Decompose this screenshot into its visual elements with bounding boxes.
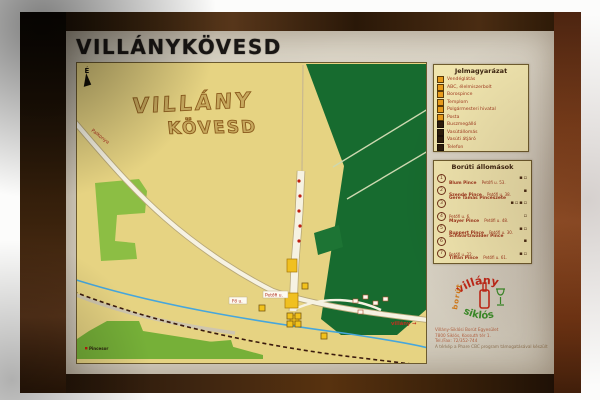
legend-item: Vendéglátás — [434, 76, 528, 84]
north-arrow: É ▲ — [83, 67, 91, 84]
street-labels: Petőfi u. Fő u. — [229, 291, 288, 304]
track-north — [302, 65, 303, 171]
logo-canvas: villány siklós borút — [444, 268, 526, 326]
direction-label-villany: villány → — [391, 320, 417, 327]
railway-station-icon — [437, 129, 444, 136]
page-title: VILLÁNYKÖVESD — [76, 35, 282, 59]
wine-route-logo: villány siklós borút — [444, 268, 526, 326]
phone-icon — [437, 144, 444, 151]
station-number: 6 — [437, 237, 446, 246]
sign-photo: VILLÁNYKÖVESD — [0, 0, 600, 400]
wine-cellar-icon — [437, 91, 444, 98]
cellar-row-dot — [85, 347, 87, 349]
station-row: 7 Tiffán Pince Petőfi u. 61. ▪▫ — [434, 248, 531, 261]
station-address: Petőfi u. 61. — [483, 255, 507, 260]
contact-note: A térkép a Phare CBC program támogatásáv… — [435, 344, 553, 350]
contact-block: Villány-Siklósi Borút Egyesület 7800 Sik… — [435, 327, 553, 349]
grocery-icon — [437, 84, 444, 91]
legend-panel: Jelmagyarázat Vendéglátás ABC, élelmisze… — [433, 64, 529, 152]
station-service-icons: ▪ — [524, 238, 528, 244]
logo-side-text: borút — [451, 283, 463, 311]
logo-arc-bottom: siklós — [462, 306, 495, 322]
church-icon — [437, 99, 444, 106]
street-label: Fő u. — [232, 298, 243, 304]
deco-line-2: KÖVESD — [167, 117, 259, 142]
legend-item: Borospince — [434, 91, 528, 99]
legend-item: Templom — [434, 99, 528, 107]
railway-crossing-icon — [437, 136, 444, 143]
station-service-icons: ▫ — [524, 213, 528, 219]
forest-area — [306, 64, 427, 335]
station-number: 4 — [437, 212, 446, 221]
station-service-icons: ▪▫▪▫ — [510, 200, 528, 206]
station-service-icons: ▪ — [524, 188, 528, 194]
legend-item: Buszmegálló — [434, 121, 528, 129]
station-name: Gere Tamás Pincészete — [449, 196, 506, 201]
north-arrow-icon: ▲ — [82, 71, 91, 88]
station-number: 7 — [437, 249, 446, 258]
map-decorative-title: VILLÁNY KÖVESD — [132, 86, 258, 146]
station-number: 2 — [437, 186, 446, 195]
station-number: 1 — [437, 174, 446, 183]
wine-glass-icon — [496, 289, 505, 305]
frame-bottom-bar — [20, 374, 580, 393]
station-name: Schwartzwalder Pince — [449, 234, 504, 239]
legend-item: Posta — [434, 114, 528, 122]
station-name: Tiffán Pince — [449, 256, 478, 261]
legend-item: Vasúti átjáró — [434, 136, 528, 144]
post-office-icon — [437, 114, 444, 121]
cellar-row-label: Pincesor — [89, 346, 108, 351]
legend-title: Jelmagyarázat — [434, 65, 528, 76]
station-number: 5 — [437, 224, 446, 233]
legend-item: Polgármesteri hivatal — [434, 106, 528, 114]
bus-stop-icon — [437, 121, 444, 128]
station-number: 3 — [437, 199, 446, 208]
station-service-icons: ▪▫ — [519, 175, 528, 181]
frame-left-post — [20, 12, 66, 393]
townhall-icon — [437, 106, 444, 113]
street-label: Petőfi u. — [265, 292, 283, 298]
village-map: Petőfi u. Fő u. villány → Palkonya Pince… — [76, 62, 427, 364]
frame-right-post — [554, 12, 581, 393]
stations-panel: Borúti állomások 1 Blum Pince Petőfi u. … — [433, 160, 532, 264]
legend-item: Vasútállomás — [434, 129, 528, 137]
restaurant-icon — [437, 76, 444, 83]
legend-item: Telefon — [434, 144, 528, 152]
frame-top-bar — [20, 12, 580, 31]
legend-item: ABC, élelmiszerbolt — [434, 84, 528, 92]
station-service-icons: ▪▫ — [519, 251, 528, 257]
